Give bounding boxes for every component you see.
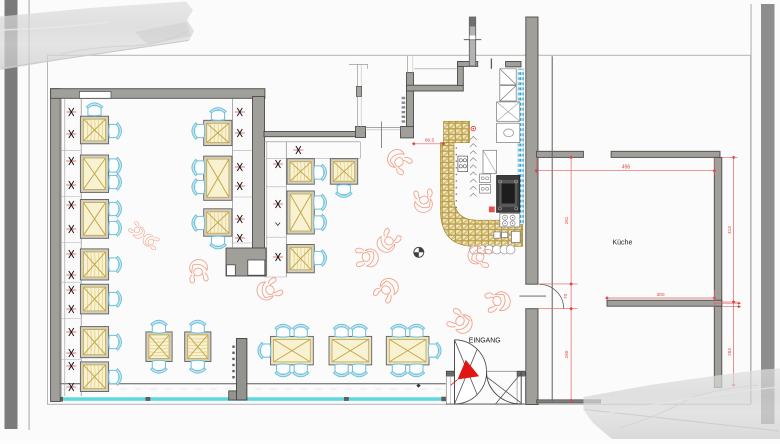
svg-text:EINGANG: EINGANG [469,338,501,345]
svg-text:496: 496 [622,164,631,170]
svg-text:300: 300 [656,292,664,298]
svg-text:70: 70 [563,293,568,299]
svg-text:260: 260 [564,350,569,358]
svg-text:Küche: Küche [613,240,633,247]
svg-text:86.5: 86.5 [425,138,435,144]
svg-text:413: 413 [727,226,732,234]
svg-text:261: 261 [564,216,569,224]
svg-text:263: 263 [727,348,732,356]
